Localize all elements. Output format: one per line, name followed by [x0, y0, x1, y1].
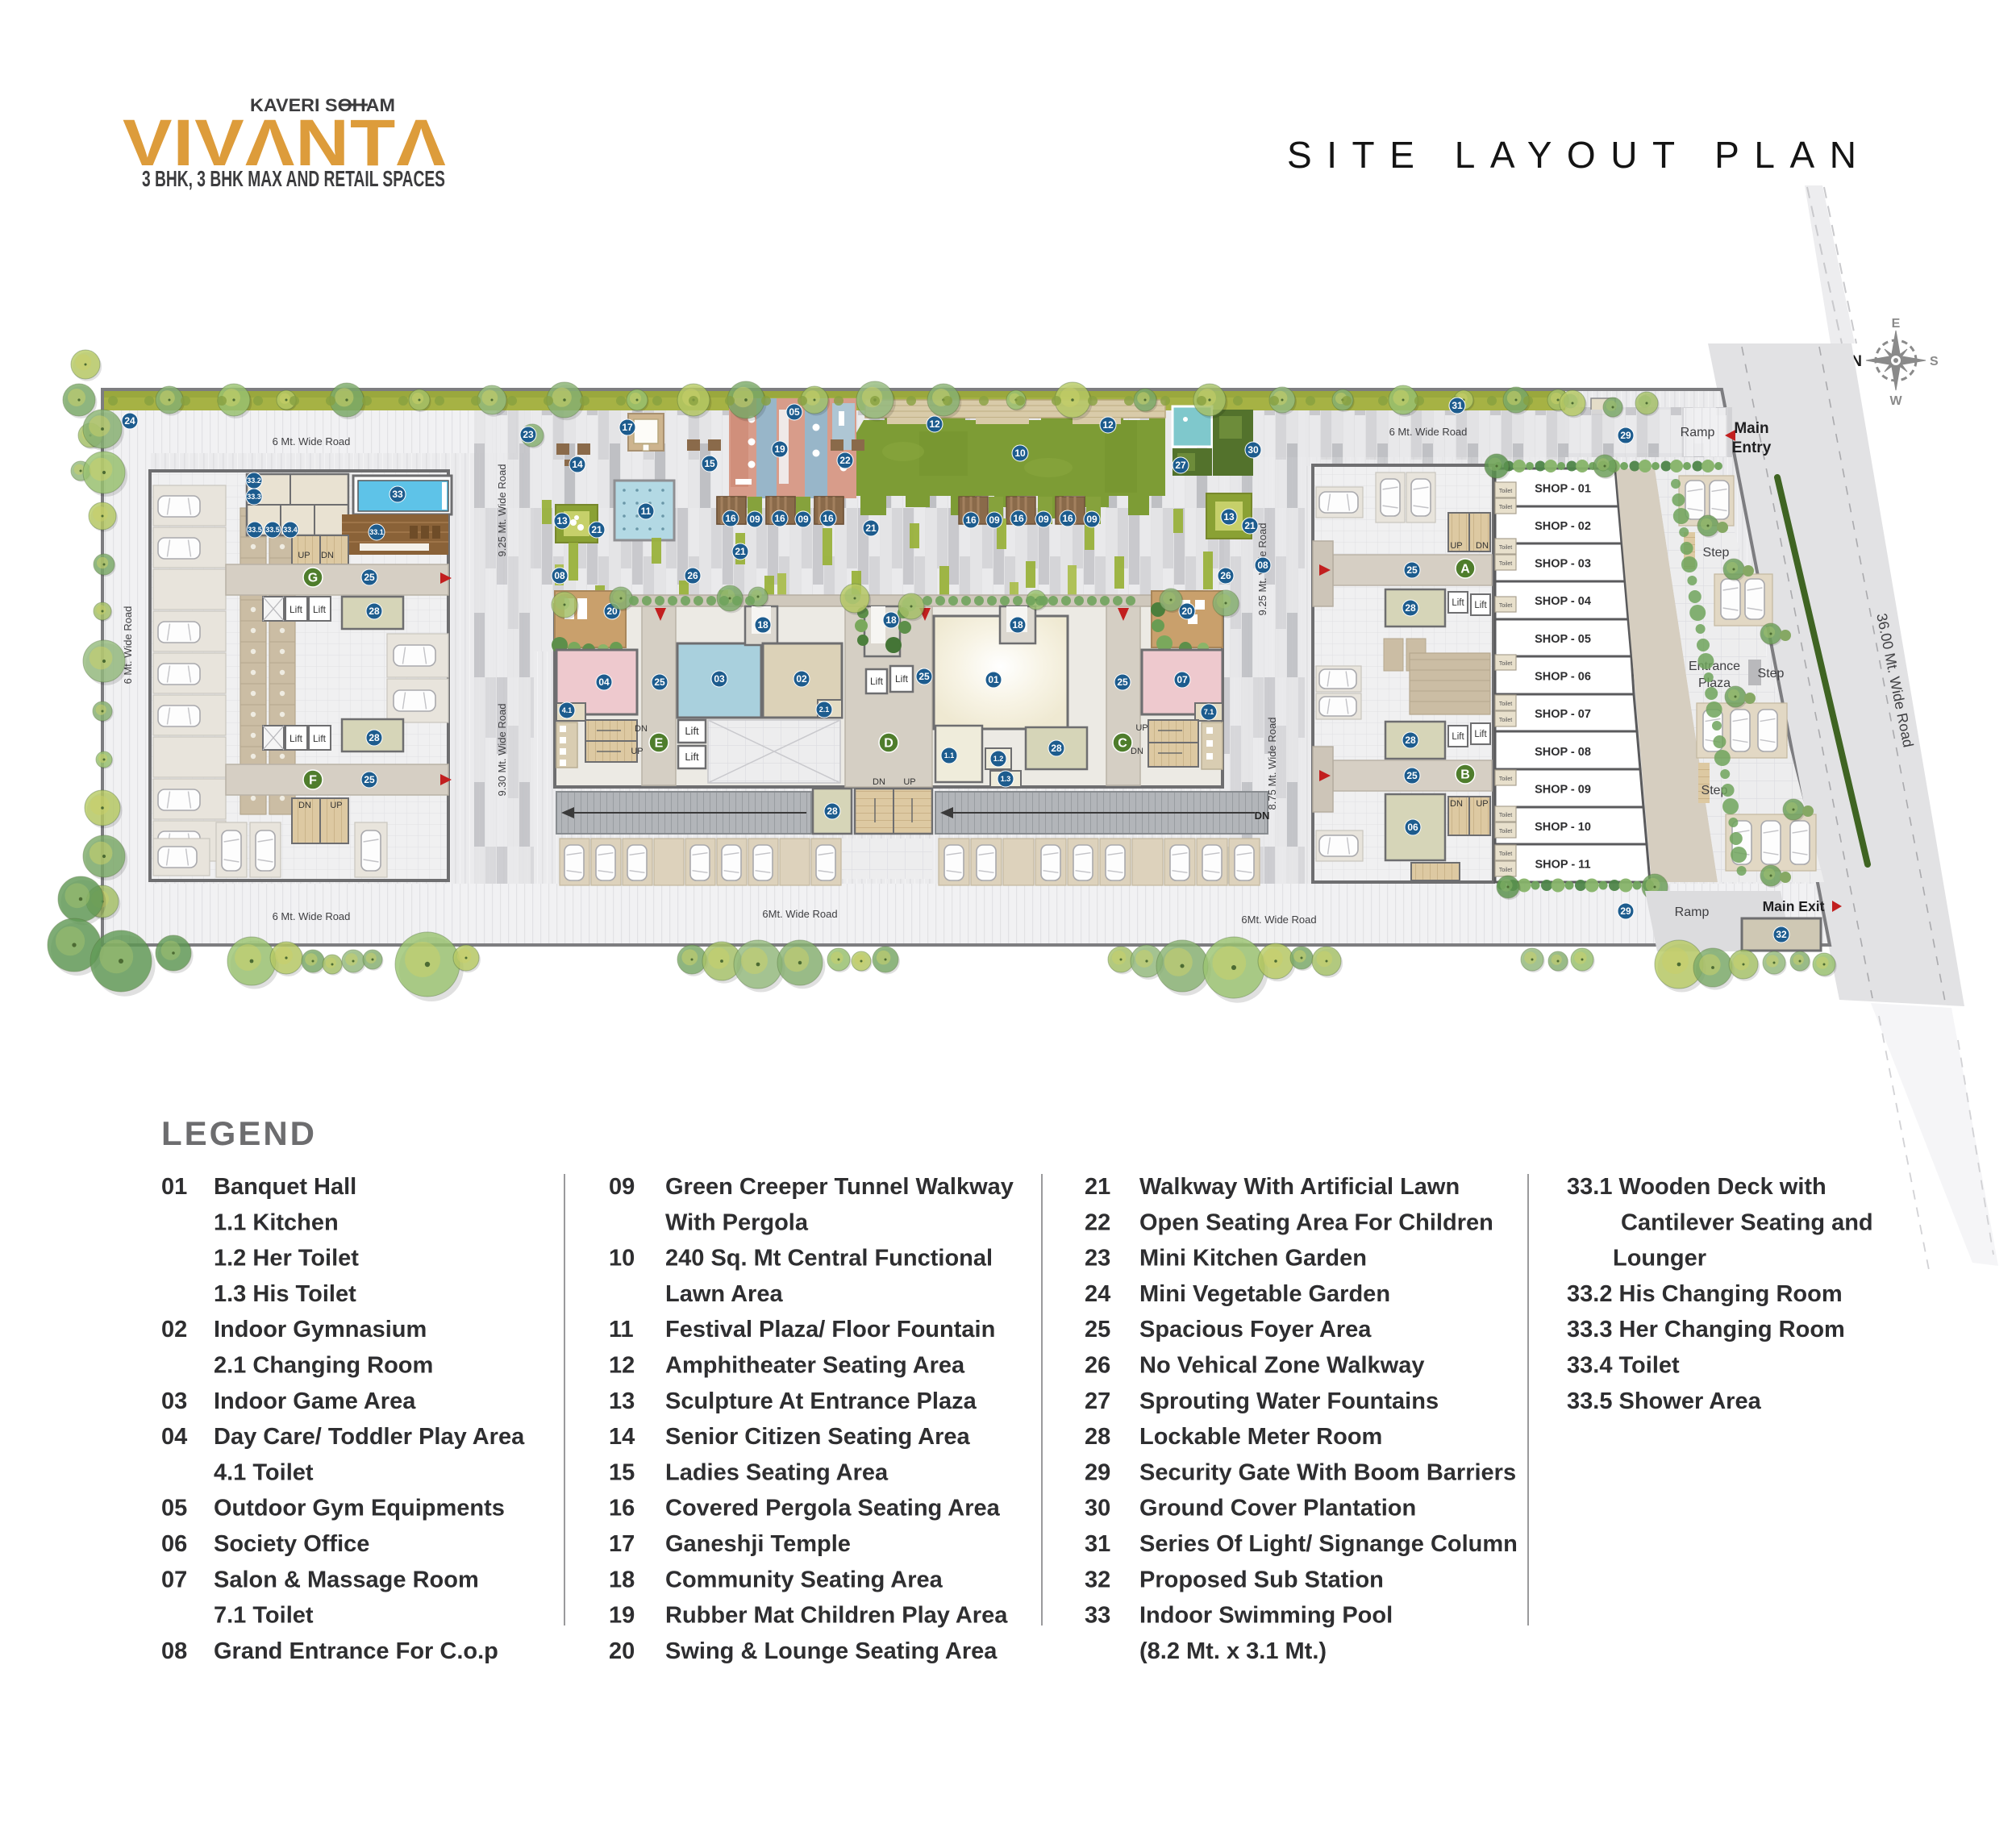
- svg-text:1.1 Kitchen: 1.1 Kitchen: [214, 1209, 339, 1235]
- svg-text:25: 25: [918, 671, 930, 682]
- svg-text:25: 25: [1406, 564, 1418, 576]
- svg-text:UP: UP: [1135, 723, 1148, 733]
- svg-text:21: 21: [735, 546, 746, 557]
- svg-text:32: 32: [1085, 1567, 1110, 1592]
- svg-text:04: 04: [598, 676, 610, 688]
- svg-text:Society Office: Society Office: [214, 1531, 369, 1557]
- svg-text:03: 03: [161, 1388, 187, 1414]
- svg-text:09: 09: [609, 1174, 635, 1200]
- svg-text:S: S: [1930, 355, 1939, 368]
- svg-text:DN: DN: [298, 801, 311, 810]
- svg-text:06: 06: [1407, 822, 1418, 833]
- svg-text:Step: Step: [1703, 546, 1730, 560]
- svg-text:09: 09: [1086, 514, 1098, 525]
- svg-text:28: 28: [1405, 735, 1416, 746]
- svg-text:09: 09: [989, 514, 1000, 526]
- svg-text:Lift: Lift: [289, 733, 303, 744]
- svg-text:Entry: Entry: [1732, 439, 1772, 456]
- svg-text:33: 33: [392, 489, 403, 500]
- svg-text:SHOP - 04: SHOP - 04: [1535, 595, 1591, 608]
- svg-text:25: 25: [364, 774, 375, 785]
- svg-text:Grand Entrance For C.o.p: Grand Entrance For C.o.p: [214, 1638, 498, 1664]
- svg-text:33.3 Her Changing Room: 33.3 Her Changing Room: [1567, 1317, 1845, 1342]
- svg-text:20: 20: [609, 1638, 635, 1664]
- svg-text:SHOP - 08: SHOP - 08: [1535, 746, 1591, 759]
- svg-text:W: W: [1889, 394, 1902, 408]
- svg-text:29: 29: [1620, 905, 1631, 917]
- svg-text:09: 09: [749, 514, 760, 525]
- svg-text:9.25 Mt. Wide Road: 9.25 Mt. Wide Road: [496, 464, 508, 557]
- svg-text:Lounger: Lounger: [1613, 1246, 1706, 1272]
- svg-text:Open Seating Area For Children: Open Seating Area For Children: [1139, 1209, 1493, 1235]
- svg-text:Toilet: Toilet: [1499, 851, 1512, 857]
- svg-text:Senior Citizen Seating Area: Senior Citizen Seating Area: [665, 1424, 970, 1450]
- svg-text:Main: Main: [1734, 420, 1768, 437]
- svg-text:23: 23: [1085, 1246, 1110, 1272]
- svg-text:Covered Pergola Seating Area: Covered Pergola Seating Area: [665, 1496, 1001, 1521]
- svg-text:Lift: Lift: [1474, 730, 1487, 739]
- svg-text:Walkway With Artificial Lawn: Walkway With Artificial Lawn: [1139, 1174, 1460, 1200]
- svg-text:28: 28: [1085, 1424, 1110, 1450]
- svg-text:25: 25: [1085, 1317, 1110, 1342]
- svg-text:2.1: 2.1: [819, 706, 830, 714]
- svg-text:33.1: 33.1: [369, 528, 384, 536]
- svg-text:Banquet Hall: Banquet Hall: [214, 1174, 356, 1200]
- svg-text:16: 16: [1013, 513, 1024, 524]
- svg-text:Lift: Lift: [870, 676, 884, 687]
- svg-text:14: 14: [572, 459, 583, 470]
- svg-text:33.5: 33.5: [248, 526, 262, 534]
- svg-text:33.5: 33.5: [265, 526, 280, 534]
- svg-text:29: 29: [1085, 1459, 1110, 1485]
- svg-text:SHOP - 11: SHOP - 11: [1535, 859, 1590, 872]
- svg-text:18: 18: [1012, 619, 1023, 631]
- svg-text:32: 32: [1776, 929, 1787, 940]
- svg-text:1.3: 1.3: [1001, 775, 1011, 783]
- svg-text:B: B: [1460, 768, 1470, 782]
- svg-text:6 Mt. Wide Road: 6 Mt. Wide Road: [1389, 426, 1468, 438]
- svg-text:Spacious Foyer Area: Spacious Foyer Area: [1139, 1317, 1372, 1342]
- svg-text:Toilet: Toilet: [1499, 868, 1512, 873]
- svg-text:Cantilever Seating and: Cantilever Seating and: [1621, 1209, 1873, 1235]
- svg-text:25: 25: [654, 676, 665, 688]
- svg-text:With Pergola: With Pergola: [665, 1209, 809, 1235]
- svg-text:12: 12: [1102, 419, 1114, 431]
- svg-text:SHOP - 10: SHOP - 10: [1535, 821, 1591, 834]
- svg-text:16: 16: [774, 513, 785, 524]
- svg-text:01: 01: [988, 674, 999, 685]
- svg-text:Green Creeper Tunnel Walkway: Green Creeper Tunnel Walkway: [665, 1174, 1014, 1200]
- svg-text:28: 28: [1405, 602, 1416, 614]
- svg-text:13: 13: [609, 1388, 635, 1414]
- svg-text:Series Of Light/ Signange Colu: Series Of Light/ Signange Column: [1139, 1531, 1518, 1557]
- svg-text:Toilet: Toilet: [1499, 661, 1512, 667]
- svg-text:Rubber Mat Children Play Area: Rubber Mat Children Play Area: [665, 1603, 1008, 1629]
- svg-text:08: 08: [1257, 560, 1268, 571]
- svg-text:05: 05: [161, 1496, 187, 1521]
- svg-text:6 Mt. Wide Road: 6 Mt. Wide Road: [273, 435, 351, 447]
- svg-text:02: 02: [796, 673, 807, 685]
- svg-text:Community Seating Area: Community Seating Area: [665, 1567, 943, 1592]
- svg-text:Step: Step: [1758, 667, 1785, 681]
- svg-text:09: 09: [798, 514, 809, 525]
- svg-text:17: 17: [622, 422, 633, 433]
- svg-text:Lift: Lift: [685, 751, 699, 763]
- svg-text:Lift: Lift: [685, 725, 699, 737]
- svg-text:16: 16: [965, 514, 977, 526]
- svg-text:28: 28: [369, 606, 380, 617]
- svg-text:8.75 Mt. Wide Road: 8.75 Mt. Wide Road: [1266, 718, 1278, 810]
- svg-text:Mini Kitchen Garden: Mini Kitchen Garden: [1139, 1246, 1367, 1272]
- svg-text:Lift: Lift: [289, 604, 303, 615]
- svg-text:UP: UP: [631, 747, 643, 756]
- svg-text:Toilet: Toilet: [1499, 701, 1512, 707]
- svg-text:30: 30: [1248, 444, 1259, 456]
- svg-text:UP: UP: [298, 551, 310, 560]
- svg-text:18: 18: [609, 1567, 635, 1592]
- svg-text:16: 16: [823, 513, 834, 524]
- svg-text:Toilet: Toilet: [1499, 813, 1512, 818]
- svg-text:33.4: 33.4: [283, 526, 298, 534]
- svg-text:Toilet: Toilet: [1499, 561, 1512, 567]
- svg-text:SHOP - 03: SHOP - 03: [1535, 558, 1591, 571]
- svg-text:1.2: 1.2: [993, 755, 1004, 763]
- svg-text:Sprouting Water Fountains: Sprouting Water Fountains: [1139, 1388, 1439, 1414]
- svg-text:DN: DN: [1255, 810, 1270, 822]
- svg-text:SHOP - 02: SHOP - 02: [1535, 520, 1591, 533]
- svg-text:16: 16: [1062, 513, 1073, 524]
- svg-text:1.3 His Toilet: 1.3 His Toilet: [214, 1281, 356, 1307]
- svg-text:25: 25: [364, 572, 375, 583]
- svg-text:16: 16: [725, 513, 736, 524]
- svg-text:22: 22: [839, 455, 851, 466]
- svg-text:07: 07: [1177, 674, 1188, 685]
- svg-text:G: G: [308, 572, 318, 585]
- svg-text:SHOP - 01: SHOP - 01: [1535, 482, 1591, 495]
- svg-text:UP: UP: [1450, 541, 1462, 551]
- svg-text:Ladies Seating Area: Ladies Seating Area: [665, 1459, 889, 1485]
- svg-text:11: 11: [609, 1317, 634, 1342]
- svg-text:29: 29: [1620, 430, 1631, 441]
- svg-text:Lift: Lift: [1452, 598, 1464, 608]
- svg-text:(8.2 Mt. x 3.1 Mt.): (8.2 Mt. x 3.1 Mt.): [1139, 1638, 1327, 1664]
- svg-text:LEGEND: LEGEND: [161, 1114, 317, 1152]
- svg-text:21: 21: [591, 524, 602, 535]
- svg-text:Toilet: Toilet: [1499, 505, 1512, 510]
- svg-text:11: 11: [641, 506, 652, 517]
- svg-text:20: 20: [1181, 606, 1193, 617]
- svg-text:UP: UP: [1476, 799, 1488, 809]
- svg-text:1.2 Her Toilet: 1.2 Her Toilet: [214, 1246, 359, 1272]
- svg-text:UP: UP: [903, 777, 915, 787]
- svg-text:6Mt. Wide Road: 6Mt. Wide Road: [1241, 914, 1316, 926]
- svg-text:Day Care/ Toddler Play Area: Day Care/ Toddler Play Area: [214, 1424, 525, 1450]
- svg-text:21: 21: [865, 522, 877, 534]
- svg-text:01: 01: [161, 1174, 187, 1200]
- svg-text:SHOP - 09: SHOP - 09: [1535, 783, 1591, 796]
- svg-text:Lawn Area: Lawn Area: [665, 1281, 783, 1307]
- svg-text:24: 24: [124, 415, 135, 427]
- svg-text:9.30 Mt. Wide Road: 9.30 Mt. Wide Road: [496, 704, 508, 797]
- svg-text:14: 14: [609, 1424, 635, 1450]
- svg-text:18: 18: [885, 614, 897, 626]
- svg-text:26: 26: [1085, 1353, 1110, 1379]
- svg-text:28: 28: [369, 732, 380, 743]
- svg-text:Entrance: Entrance: [1689, 660, 1740, 673]
- svg-text:DN: DN: [1476, 541, 1489, 551]
- svg-text:26: 26: [1220, 570, 1231, 581]
- svg-text:13: 13: [556, 515, 568, 527]
- svg-text:Toilet: Toilet: [1499, 776, 1512, 782]
- svg-text:Indoor Gymnasium: Indoor Gymnasium: [214, 1317, 427, 1342]
- svg-text:27: 27: [1085, 1388, 1110, 1414]
- svg-text:Security Gate With Boom Barrie: Security Gate With Boom Barriers: [1139, 1459, 1516, 1485]
- svg-text:04: 04: [161, 1424, 187, 1450]
- svg-text:6Mt. Wide Road: 6Mt. Wide Road: [762, 908, 837, 920]
- svg-text:10: 10: [609, 1246, 635, 1272]
- svg-text:26: 26: [687, 570, 698, 581]
- svg-text:Sculpture At Entrance Plaza: Sculpture At Entrance Plaza: [665, 1388, 977, 1414]
- svg-text:Lift: Lift: [313, 604, 327, 615]
- svg-text:Toilet: Toilet: [1499, 489, 1512, 494]
- svg-text:33.4 Toilet: 33.4 Toilet: [1567, 1353, 1680, 1379]
- svg-text:10: 10: [1014, 447, 1026, 459]
- svg-text:Lift: Lift: [895, 673, 909, 685]
- svg-text:28: 28: [1051, 743, 1062, 754]
- svg-text:33.1 Wooden Deck with: 33.1 Wooden Deck with: [1567, 1174, 1826, 1200]
- svg-text:05: 05: [789, 406, 800, 418]
- svg-text:23: 23: [523, 429, 534, 440]
- svg-text:2.1 Changing Room: 2.1 Changing Room: [214, 1353, 433, 1379]
- svg-text:DN: DN: [1131, 747, 1143, 756]
- svg-text:25: 25: [1117, 676, 1128, 688]
- svg-text:07: 07: [161, 1567, 187, 1592]
- svg-text:08: 08: [554, 570, 565, 581]
- svg-text:21: 21: [1244, 520, 1256, 531]
- svg-text:7.1 Toilet: 7.1 Toilet: [214, 1603, 314, 1629]
- svg-text:12: 12: [609, 1353, 635, 1379]
- svg-text:Toilet: Toilet: [1499, 829, 1512, 835]
- svg-text:DN: DN: [1450, 799, 1463, 809]
- svg-text:Salon & Massage Room: Salon & Massage Room: [214, 1567, 479, 1592]
- svg-text:240 Sq. Mt Central Functional: 240 Sq. Mt Central Functional: [665, 1246, 993, 1272]
- svg-text:Ramp: Ramp: [1675, 905, 1710, 919]
- svg-text:31: 31: [1085, 1531, 1110, 1557]
- svg-text:15: 15: [609, 1459, 635, 1485]
- svg-text:Proposed Sub Station: Proposed Sub Station: [1139, 1567, 1384, 1592]
- svg-text:03: 03: [714, 673, 725, 685]
- svg-text:28: 28: [827, 805, 838, 817]
- svg-text:Main Exit: Main Exit: [1763, 898, 1825, 914]
- svg-text:Lockable Meter Room: Lockable Meter Room: [1139, 1424, 1382, 1450]
- svg-text:19: 19: [609, 1603, 635, 1629]
- svg-text:Ramp: Ramp: [1681, 426, 1715, 439]
- svg-text:33.2 His Changing Room: 33.2 His Changing Room: [1567, 1281, 1843, 1307]
- svg-text:30: 30: [1085, 1496, 1110, 1521]
- svg-text:F: F: [309, 774, 317, 788]
- svg-text:15: 15: [704, 458, 715, 469]
- svg-text:33: 33: [1085, 1603, 1110, 1629]
- svg-text:DN: DN: [321, 551, 334, 560]
- svg-text:Toilet: Toilet: [1499, 545, 1512, 551]
- svg-text:SHOP - 07: SHOP - 07: [1535, 708, 1591, 721]
- svg-text:4.1: 4.1: [562, 706, 573, 714]
- svg-text:Toilet: Toilet: [1499, 718, 1512, 723]
- svg-text:Ground Cover Plantation: Ground Cover Plantation: [1139, 1496, 1416, 1521]
- svg-text:C: C: [1118, 737, 1127, 751]
- svg-text:No Vehical Zone Walkway: No Vehical Zone Walkway: [1139, 1353, 1424, 1379]
- svg-text:33.3: 33.3: [247, 493, 261, 501]
- svg-text:12: 12: [929, 418, 940, 430]
- svg-text:31: 31: [1452, 400, 1463, 411]
- svg-text:Toilet: Toilet: [1499, 603, 1512, 609]
- svg-text:Outdoor Gym Equipments: Outdoor Gym Equipments: [214, 1496, 505, 1521]
- svg-text:SHOP - 05: SHOP - 05: [1535, 633, 1591, 646]
- svg-text:SITE LAYOUT PLAN: SITE LAYOUT PLAN: [1287, 134, 1876, 176]
- svg-text:Indoor Swimming Pool: Indoor Swimming Pool: [1139, 1603, 1393, 1629]
- svg-text:24: 24: [1085, 1281, 1110, 1307]
- svg-text:Mini Vegetable Garden: Mini Vegetable Garden: [1139, 1281, 1390, 1307]
- svg-text:17: 17: [609, 1531, 635, 1557]
- svg-text:4.1 Toilet: 4.1 Toilet: [214, 1459, 314, 1485]
- svg-text:D: D: [884, 737, 893, 751]
- svg-text:18: 18: [757, 619, 768, 631]
- svg-text:A: A: [1460, 563, 1470, 577]
- svg-text:19: 19: [774, 443, 785, 455]
- svg-text:13: 13: [1223, 511, 1235, 522]
- svg-text:33.2: 33.2: [247, 477, 261, 485]
- svg-text:16: 16: [609, 1496, 635, 1521]
- svg-text:Lift: Lift: [313, 733, 327, 744]
- svg-text:1.1: 1.1: [944, 751, 955, 760]
- svg-text:33.5 Shower Area: 33.5 Shower Area: [1567, 1388, 1762, 1414]
- svg-text:DN: DN: [873, 777, 885, 787]
- svg-text:22: 22: [1085, 1209, 1110, 1235]
- svg-text:E: E: [655, 737, 664, 751]
- svg-text:UP: UP: [330, 801, 342, 810]
- svg-text:Festival Plaza/ Floor Fountain: Festival Plaza/ Floor Fountain: [665, 1317, 995, 1342]
- svg-text:SHOP - 06: SHOP - 06: [1535, 671, 1591, 684]
- svg-text:21: 21: [1085, 1174, 1110, 1200]
- svg-text:09: 09: [1038, 514, 1049, 525]
- svg-text:06: 06: [161, 1531, 187, 1557]
- svg-text:6 Mt. Wide Road: 6 Mt. Wide Road: [273, 910, 351, 922]
- svg-text:3 BHK, 3 BHK MAX AND RETAIL SP: 3 BHK, 3 BHK MAX AND RETAIL SPACES: [142, 166, 445, 191]
- svg-text:Indoor Game Area: Indoor Game Area: [214, 1388, 416, 1414]
- svg-text:08: 08: [161, 1638, 187, 1664]
- svg-text:Lift: Lift: [1474, 601, 1487, 610]
- svg-text:02: 02: [161, 1317, 187, 1342]
- svg-text:Swing & Lounge Seating Area: Swing & Lounge Seating Area: [665, 1638, 998, 1664]
- svg-text:DN: DN: [635, 724, 648, 734]
- svg-text:27: 27: [1175, 460, 1186, 471]
- svg-text:Lift: Lift: [1452, 732, 1464, 742]
- svg-text:Ganeshji Temple: Ganeshji Temple: [665, 1531, 851, 1557]
- svg-text:Amphitheater Seating Area: Amphitheater Seating Area: [665, 1353, 965, 1379]
- svg-text:7.1: 7.1: [1204, 708, 1214, 716]
- svg-text:E: E: [1892, 317, 1901, 331]
- svg-text:25: 25: [1406, 770, 1418, 781]
